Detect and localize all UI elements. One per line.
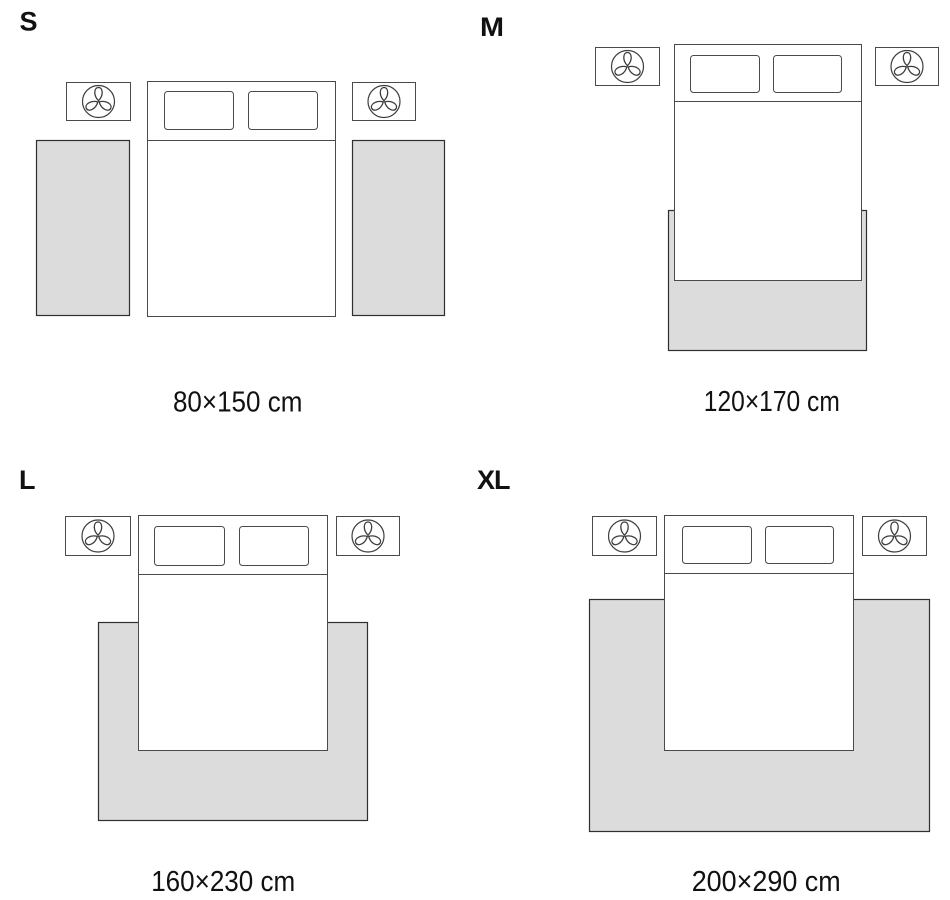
svg-text:160×230 cm: 160×230 cm (151, 866, 295, 898)
svg-text:L: L (19, 465, 36, 495)
svg-text:80×150 cm: 80×150 cm (173, 387, 303, 419)
svg-text:S: S (20, 6, 38, 36)
svg-text:XL: XL (477, 465, 510, 495)
svg-text:120×170 cm: 120×170 cm (704, 386, 840, 418)
svg-text:200×290 cm: 200×290 cm (692, 866, 841, 898)
svg-text:M: M (480, 12, 504, 42)
